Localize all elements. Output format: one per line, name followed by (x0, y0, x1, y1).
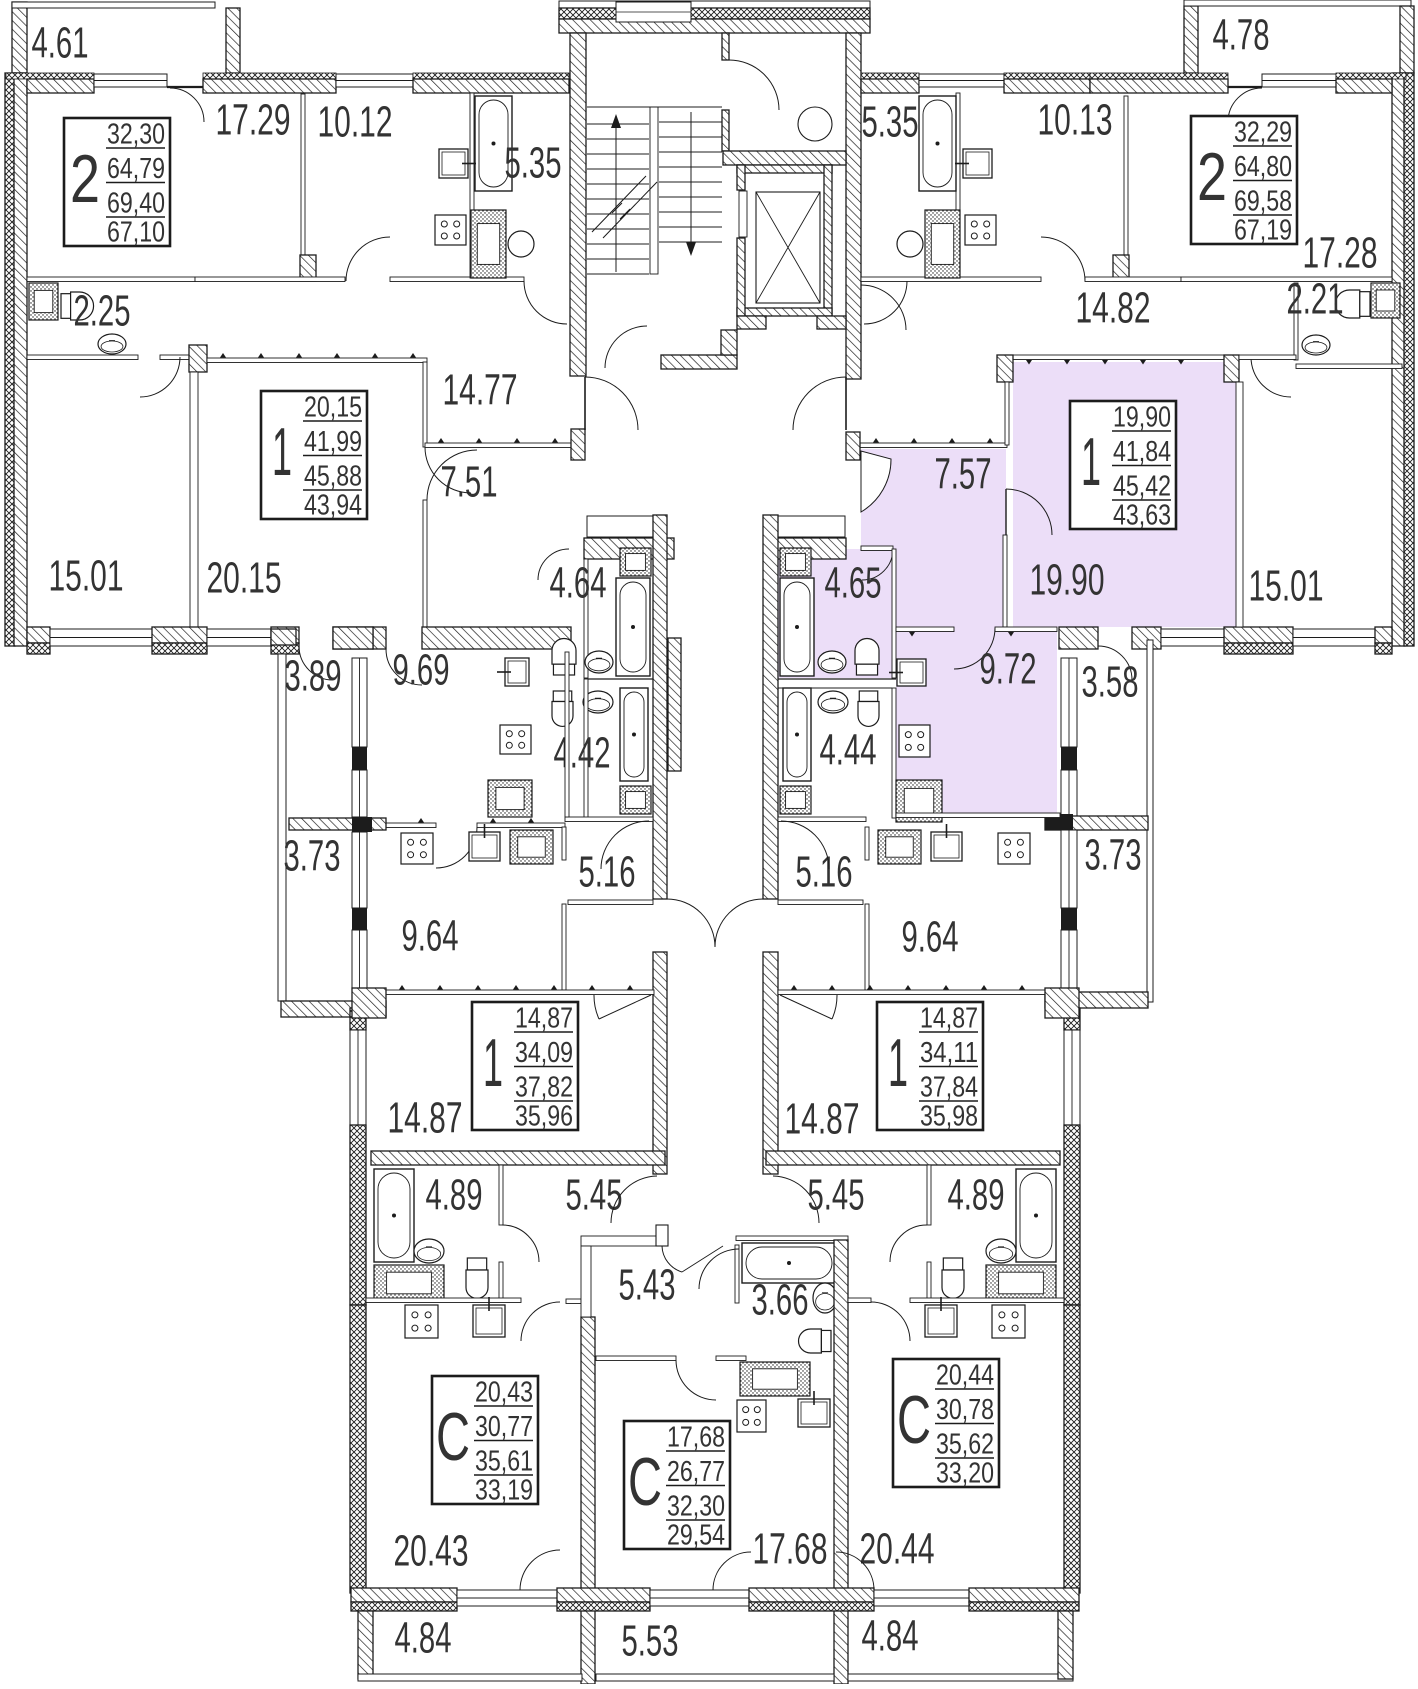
svg-text:15.01: 15.01 (49, 552, 124, 601)
svg-text:10.13: 10.13 (1038, 96, 1113, 145)
svg-text:34,09: 34,09 (515, 1037, 573, 1069)
svg-text:1: 1 (483, 1025, 503, 1101)
svg-text:35,98: 35,98 (920, 1101, 978, 1133)
svg-text:32,30: 32,30 (667, 1491, 725, 1523)
svg-text:35,61: 35,61 (475, 1446, 533, 1478)
svg-text:14.82: 14.82 (1076, 284, 1151, 333)
svg-text:69,40: 69,40 (107, 188, 165, 220)
svg-text:43,94: 43,94 (304, 490, 362, 522)
svg-text:3.66: 3.66 (752, 1276, 809, 1325)
svg-text:64,79: 64,79 (107, 153, 165, 185)
svg-text:19,90: 19,90 (1113, 402, 1171, 434)
svg-text:69,58: 69,58 (1234, 186, 1292, 218)
svg-text:C: C (436, 1399, 470, 1475)
svg-text:64,80: 64,80 (1234, 151, 1292, 183)
svg-text:17.28: 17.28 (1303, 229, 1378, 278)
svg-text:4.61: 4.61 (32, 19, 89, 68)
svg-text:2.25: 2.25 (74, 287, 131, 336)
svg-text:4.64: 4.64 (550, 559, 607, 608)
svg-text:45,42: 45,42 (1113, 471, 1171, 503)
svg-text:20,44: 20,44 (936, 1360, 994, 1392)
svg-text:41,84: 41,84 (1113, 436, 1171, 468)
svg-text:19.90: 19.90 (1030, 556, 1105, 605)
svg-text:1: 1 (272, 414, 292, 490)
svg-text:9.64: 9.64 (902, 913, 959, 962)
svg-text:4.84: 4.84 (862, 1612, 919, 1661)
svg-text:2: 2 (1197, 139, 1227, 215)
svg-text:4.89: 4.89 (426, 1171, 483, 1220)
svg-text:20.43: 20.43 (394, 1527, 469, 1576)
svg-text:30,77: 30,77 (475, 1411, 533, 1443)
svg-text:29,54: 29,54 (667, 1520, 725, 1552)
svg-text:17.29: 17.29 (216, 96, 291, 145)
svg-text:35,96: 35,96 (515, 1101, 573, 1133)
svg-text:32,30: 32,30 (107, 119, 165, 151)
svg-text:2: 2 (70, 141, 100, 217)
svg-text:14.87: 14.87 (785, 1095, 860, 1144)
svg-text:7.57: 7.57 (935, 450, 992, 499)
svg-text:26,77: 26,77 (667, 1456, 725, 1488)
svg-text:9.69: 9.69 (393, 646, 450, 695)
svg-text:9.64: 9.64 (402, 912, 459, 961)
svg-text:3.58: 3.58 (1082, 658, 1139, 707)
svg-text:34,11: 34,11 (920, 1037, 978, 1069)
svg-text:5.45: 5.45 (808, 1171, 865, 1220)
svg-text:37,82: 37,82 (515, 1072, 573, 1104)
svg-text:15.01: 15.01 (1249, 562, 1324, 611)
svg-text:20.15: 20.15 (207, 554, 282, 603)
svg-text:30,78: 30,78 (936, 1394, 994, 1426)
svg-text:45,88: 45,88 (304, 461, 362, 493)
svg-text:20.44: 20.44 (860, 1525, 935, 1574)
svg-text:5.43: 5.43 (619, 1261, 676, 1310)
svg-text:41,99: 41,99 (304, 426, 362, 458)
svg-text:4.65: 4.65 (825, 559, 882, 608)
svg-text:32,29: 32,29 (1234, 117, 1292, 149)
svg-text:33,20: 33,20 (936, 1458, 994, 1490)
svg-text:35,62: 35,62 (936, 1429, 994, 1461)
svg-text:17,68: 17,68 (667, 1422, 725, 1454)
svg-text:14,87: 14,87 (515, 1003, 573, 1035)
svg-text:5.16: 5.16 (796, 848, 853, 897)
svg-text:C: C (628, 1444, 662, 1520)
svg-text:67,19: 67,19 (1234, 215, 1292, 247)
svg-text:7.51: 7.51 (441, 458, 498, 507)
svg-text:C: C (897, 1382, 931, 1458)
svg-text:5.53: 5.53 (622, 1617, 679, 1666)
svg-text:33,19: 33,19 (475, 1475, 533, 1507)
svg-text:14.77: 14.77 (443, 366, 518, 415)
svg-text:20,43: 20,43 (475, 1377, 533, 1409)
svg-text:10.12: 10.12 (318, 98, 393, 147)
svg-text:20,15: 20,15 (304, 392, 362, 424)
svg-text:2.21: 2.21 (1287, 275, 1344, 324)
svg-text:3.73: 3.73 (284, 832, 341, 881)
svg-text:14,87: 14,87 (920, 1003, 978, 1035)
svg-text:17.68: 17.68 (753, 1525, 828, 1574)
svg-text:3.73: 3.73 (1085, 831, 1142, 880)
svg-text:4.84: 4.84 (395, 1614, 452, 1663)
svg-text:5.16: 5.16 (579, 848, 636, 897)
svg-text:1: 1 (888, 1025, 908, 1101)
svg-text:43,63: 43,63 (1113, 500, 1171, 532)
svg-text:4.44: 4.44 (820, 726, 877, 775)
svg-text:9.72: 9.72 (980, 645, 1037, 694)
svg-text:37,84: 37,84 (920, 1072, 978, 1104)
svg-text:4.78: 4.78 (1213, 11, 1270, 60)
svg-text:1: 1 (1081, 424, 1101, 500)
svg-text:5.35: 5.35 (862, 98, 919, 147)
svg-text:5.35: 5.35 (505, 139, 562, 188)
svg-text:5.45: 5.45 (566, 1171, 623, 1220)
svg-text:67,10: 67,10 (107, 217, 165, 249)
svg-text:14.87: 14.87 (388, 1094, 463, 1143)
svg-text:3.89: 3.89 (285, 652, 342, 701)
svg-text:4.42: 4.42 (554, 729, 611, 778)
svg-text:4.89: 4.89 (948, 1171, 1005, 1220)
